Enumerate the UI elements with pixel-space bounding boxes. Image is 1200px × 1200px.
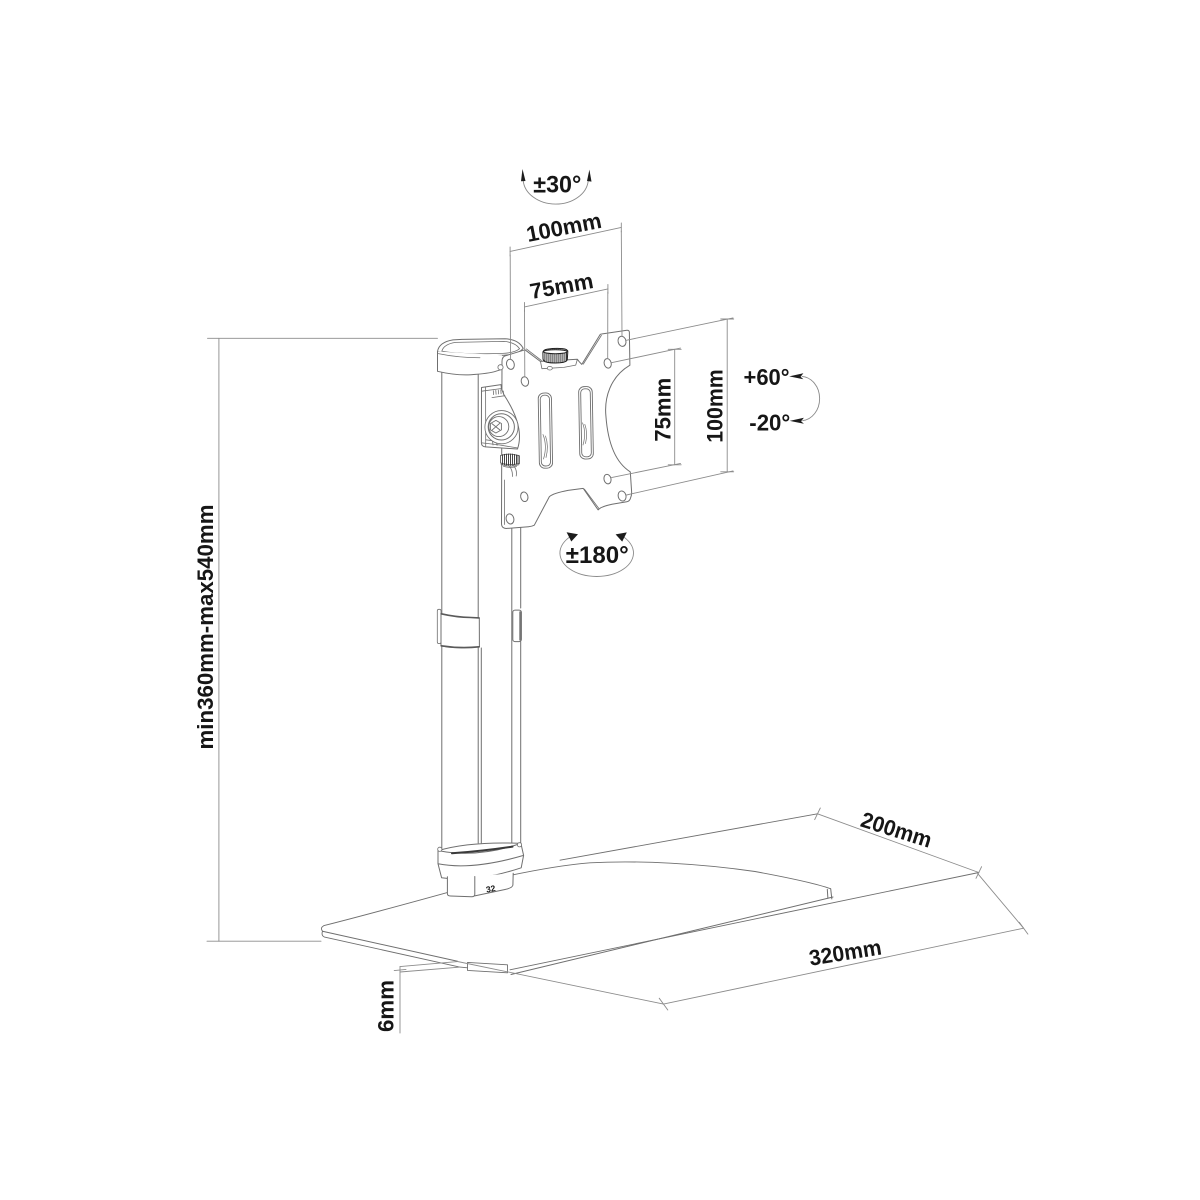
svg-text:min360mm-max540mm: min360mm-max540mm <box>193 505 218 750</box>
svg-text:+60°: +60° <box>744 364 790 390</box>
svg-text:100mm: 100mm <box>703 369 728 443</box>
svg-text:-20°: -20° <box>749 410 790 436</box>
svg-text:6mm: 6mm <box>373 980 398 1032</box>
svg-text:75mm: 75mm <box>651 378 676 442</box>
svg-text:±30°: ±30° <box>533 172 581 199</box>
svg-text:±180°: ±180° <box>566 542 629 569</box>
